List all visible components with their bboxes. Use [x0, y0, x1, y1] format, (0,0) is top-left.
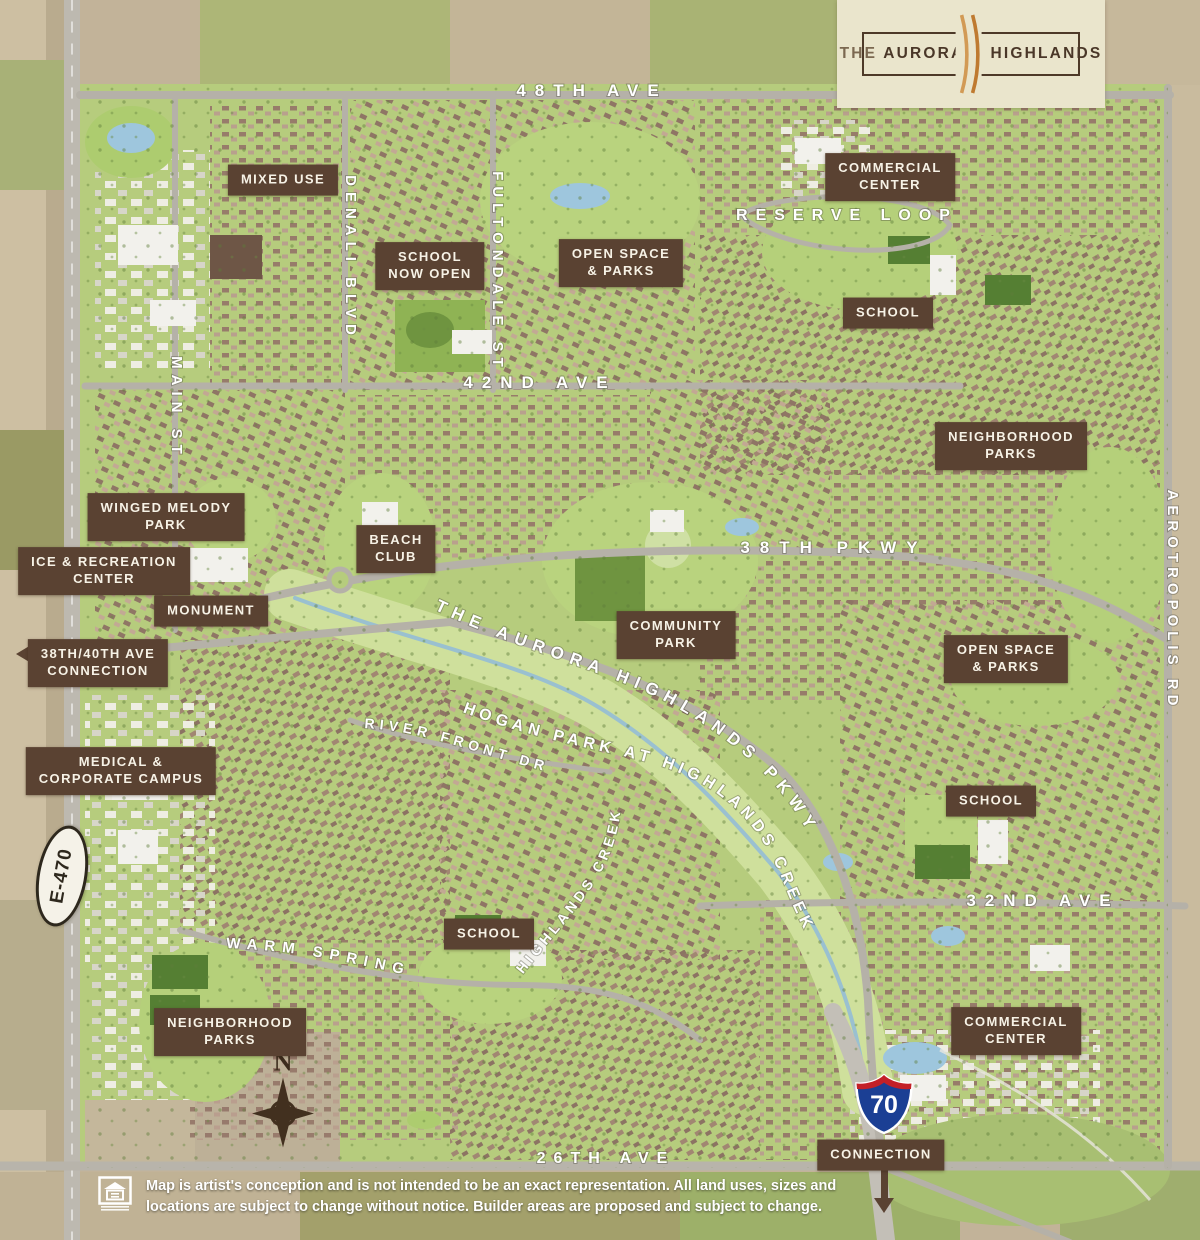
disclaimer-line-1: Map is artist's conception and is not in…: [146, 1176, 836, 1197]
road-label-aerotropolis-rd: AEROTROPOLIS RD: [1164, 490, 1181, 711]
road-label-26th-ave: 26TH AVE: [537, 1150, 676, 1167]
road-label-48th-ave: 48TH AVE: [516, 81, 667, 100]
place-label-commercial-center-south: COMMERCIALCENTER: [951, 1007, 1081, 1055]
disclaimer-text: Map is artist's conception and is not in…: [146, 1176, 836, 1218]
place-label-ice-recreation-center: ICE & RECREATIONCENTER: [18, 547, 190, 595]
road-label-38th-pkwy: 38TH PKWY: [740, 538, 927, 557]
place-label-connection: CONNECTION: [817, 1140, 944, 1171]
aurora-highlands-map: 48TH AVERESERVE LOOPDENALI BLVDFULTONDAL…: [0, 0, 1200, 1240]
place-label-beach-club: BEACHCLUB: [356, 525, 435, 573]
road-label-fultondale-st: FULTONDALE ST: [489, 171, 506, 373]
compass-rose: N: [248, 1050, 318, 1155]
place-label-school-now-open: SCHOOLNOW OPEN: [375, 242, 484, 290]
place-label-open-space-parks-southeast: OPEN SPACE& PARKS: [944, 635, 1068, 683]
road-label-denali-blvd: DENALI BLVD: [342, 175, 359, 341]
interstate-70-shield-icon: 70: [855, 1074, 913, 1134]
place-label-school-south: SCHOOL: [444, 919, 534, 950]
place-label-neighborhood-parks-south: NEIGHBORHOODPARKS: [154, 1008, 306, 1056]
disclaimer: Map is artist's conception and is not in…: [98, 1176, 1118, 1218]
disclaimer-line-2: locations are subject to change without …: [146, 1197, 836, 1218]
logo-double-slash-icon: [954, 11, 984, 97]
place-label-commercial-center-north: COMMERCIALCENTER: [825, 153, 955, 201]
place-label-38th-40th-ave-connection: 38TH/40TH AVECONNECTION: [28, 639, 168, 687]
logo-aurora: AURORA: [883, 45, 964, 62]
aurora-highlands-logo: THEAURORA HIGHLANDS: [837, 0, 1105, 108]
road-label-reserve-loop: RESERVE LOOP: [736, 207, 958, 224]
place-label-open-space-parks-north: OPEN SPACE& PARKS: [559, 239, 683, 287]
place-label-mixed-use: MIXED USE: [228, 165, 338, 196]
e470-label: E-470: [46, 847, 77, 906]
logo-frame: THEAURORA HIGHLANDS: [862, 32, 1080, 76]
place-label-neighborhood-parks-east: NEIGHBORHOODPARKS: [935, 422, 1087, 470]
road-label-main-st: MAIN ST: [168, 356, 185, 460]
road-label-42nd-ave: 42ND AVE: [463, 373, 616, 392]
place-label-community-park: COMMUNITYPARK: [617, 611, 736, 659]
place-label-school-east: SCHOOL: [946, 786, 1036, 817]
logo-text: THEAURORA: [840, 45, 965, 63]
place-label-monument: MONUMENT: [154, 596, 268, 627]
logo-highlands: HIGHLANDS: [990, 45, 1102, 63]
place-label-medical-corporate-campus: MEDICAL &CORPORATE CAMPUS: [26, 747, 216, 795]
place-label-winged-melody-park: WINGED MELODYPARK: [88, 493, 245, 541]
i70-number: 70: [855, 1091, 913, 1120]
equal-housing-logo-icon: [98, 1176, 132, 1212]
logo-the: THE: [840, 45, 878, 62]
road-label-32nd-ave: 32ND AVE: [966, 891, 1119, 910]
compass-star-icon: [248, 1076, 318, 1150]
place-label-school-northeast: SCHOOL: [843, 298, 933, 329]
